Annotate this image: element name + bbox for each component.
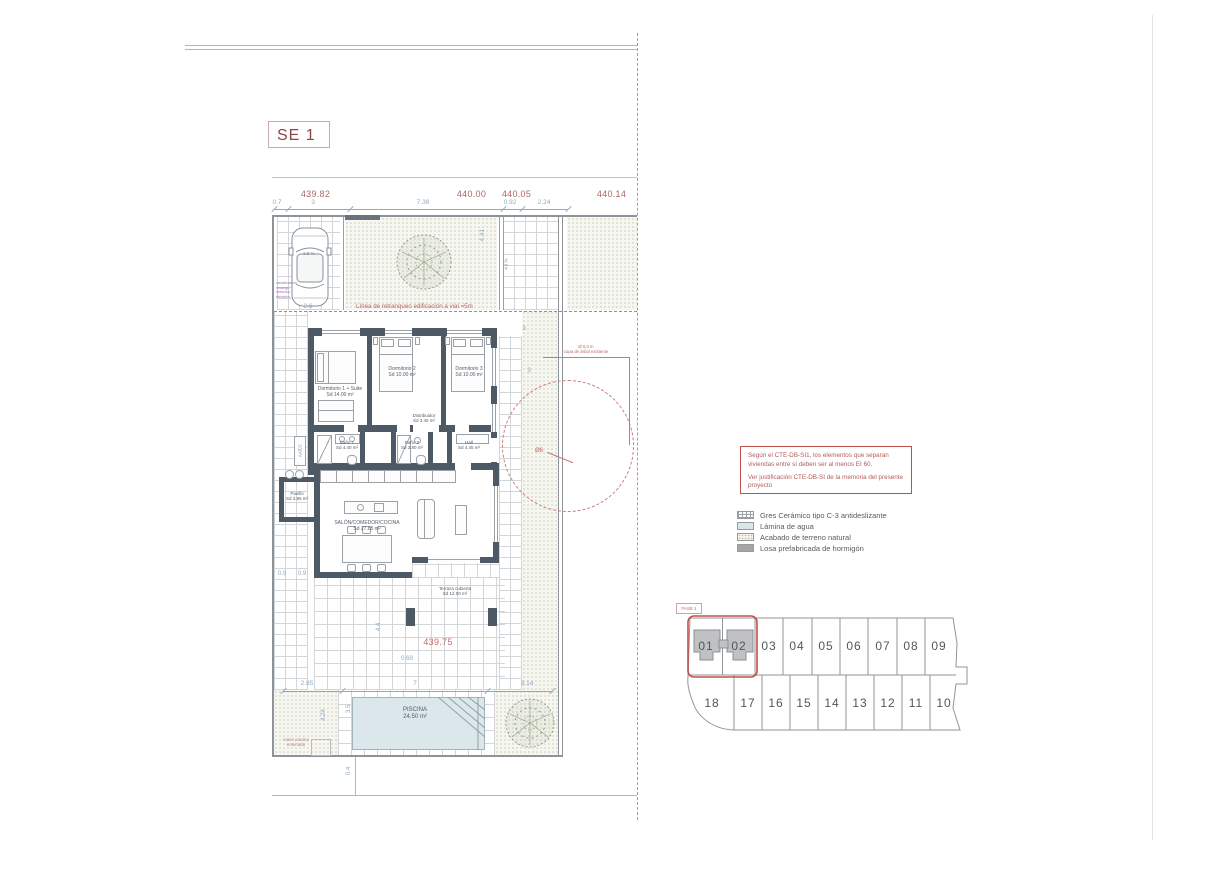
level-label: 439.75 xyxy=(418,638,458,647)
front-garden-right xyxy=(567,217,637,310)
frame-top-line-1 xyxy=(185,45,637,46)
plot-cell-11: 11 xyxy=(904,696,928,710)
dimension-label: 7.38 xyxy=(410,200,436,207)
ev-charging-note: canalización recargavehículo eléctrico xyxy=(276,281,302,300)
plot-cell-07: 07 xyxy=(871,639,895,653)
plot-cell-18: 18 xyxy=(700,696,724,710)
dimension-label: 3 xyxy=(515,326,533,333)
pool-motor-note: motor piscina enterrado xyxy=(282,737,310,748)
frame-top-line-2 xyxy=(185,49,637,50)
dimension-label: 4.41 xyxy=(480,222,487,248)
plot-cell-10: 10 xyxy=(932,696,956,710)
dimension-label: 7 xyxy=(404,681,426,688)
garden-slope-label: 4.9 % xyxy=(503,252,508,270)
setback-line-front xyxy=(274,311,637,312)
room-label-bano-1: Baño 1Sd 4.40 m² xyxy=(327,440,367,451)
plot-cell-03: 03 xyxy=(757,639,781,653)
room-label-salon: SALÓN/COMEDOR/COCINASd 27.85 m² xyxy=(327,520,407,532)
sofa xyxy=(417,499,435,539)
dimension-label: 2.6 xyxy=(298,304,318,311)
sheet-title: SE 1 xyxy=(268,121,330,148)
room-label-dormitorio-1: Dormitorio 1 + SuiteSd 14.00 m² xyxy=(310,386,370,398)
legend-swatch-ceramic xyxy=(737,511,754,519)
dimension-label: 0.9 xyxy=(294,571,310,577)
pool-steps xyxy=(438,697,485,750)
plot-cell-08: 08 xyxy=(899,639,923,653)
setback-front-label: Línea de retranqueo edificación a vial =… xyxy=(356,303,506,311)
parking-divider xyxy=(343,217,344,310)
level-label: 440.14 xyxy=(589,190,634,199)
dimension-label: 2.24 xyxy=(531,200,557,207)
frame-mid-line xyxy=(272,177,637,178)
plot-cell-12: 12 xyxy=(876,696,900,710)
plot-cell-04: 04 xyxy=(785,639,809,653)
legend-label: Lámina de agua xyxy=(760,522,814,531)
dimension-label: 0.69 xyxy=(396,656,418,662)
pool-motor-box xyxy=(311,739,331,756)
plot-cell-09: 09 xyxy=(927,639,951,653)
terrace-pillar xyxy=(406,608,415,626)
dimension-label: 0.92 xyxy=(497,200,523,207)
terrace-pillar xyxy=(488,608,497,626)
legend-swatch-terrain xyxy=(737,533,754,541)
legend-label: Acabado de terreno natural xyxy=(760,533,851,542)
aacc-label: AA/CC xyxy=(297,439,302,463)
plot-cell-01: 01 xyxy=(694,639,718,653)
fire-code-note: Según el CTE-DB-SI1, los elementos que s… xyxy=(740,446,912,494)
level-label: 439.82 xyxy=(293,190,338,199)
garden-wall-a xyxy=(499,217,500,310)
parking-slope-label: 2.5 % xyxy=(303,251,315,257)
street-line xyxy=(272,795,637,796)
side-path-right xyxy=(499,336,522,690)
plot-cell-17: 17 xyxy=(736,696,760,710)
tree-bracket-v xyxy=(629,357,630,445)
tree-icon xyxy=(503,696,557,750)
dimension-label: 2.85 xyxy=(294,681,320,688)
gate-segment xyxy=(345,215,380,220)
plot-cell-05: 05 xyxy=(814,639,838,653)
tree-icon xyxy=(394,232,454,292)
room-label-pasillo: PasilloSd 3.85 m² xyxy=(277,491,317,502)
room-label-hall: HallSd 4.45 m² xyxy=(449,440,489,451)
plot-cell-16: 16 xyxy=(764,696,788,710)
plot-cell-02: 02 xyxy=(727,639,751,653)
existing-tree-canopy xyxy=(502,380,634,512)
room-label-distribuidor: DistribuidorSd 3.40 m² xyxy=(404,413,444,424)
room-label-bano-2: Baño 2Sd 3.80 m² xyxy=(392,440,432,451)
dimension-label: 0.9 xyxy=(274,571,290,577)
legend-swatch-water xyxy=(737,522,754,530)
legend-swatch-concrete xyxy=(737,544,754,552)
pool-label: PISCINA24.50 m² xyxy=(385,707,445,721)
dimension-label: 3.14 xyxy=(514,681,540,688)
tree-bracket-h xyxy=(543,357,629,358)
plot-cell-14: 14 xyxy=(820,696,844,710)
room-label-dormitorio-3: Dormitorio 3Sd 10.00 m² xyxy=(439,366,499,378)
sheet-right-edge xyxy=(1152,15,1153,840)
tree-diameter-label: Ø6 xyxy=(531,448,547,456)
plot-cell-06: 06 xyxy=(842,639,866,653)
dimension-line xyxy=(274,209,568,210)
legend-label: Gres Cerámico tipo C-3 antideslizante xyxy=(760,511,887,520)
frame-fold-dashed-line xyxy=(637,33,638,820)
street-offset-line xyxy=(355,757,356,795)
plot-cell-13: 13 xyxy=(848,696,872,710)
boundary-left xyxy=(272,215,274,757)
entry-door xyxy=(491,438,497,462)
terrace-paving xyxy=(412,563,499,578)
dimension-label: 4.24 xyxy=(321,704,327,726)
level-label: 440.05 xyxy=(494,190,539,199)
pool-dimension-line xyxy=(283,691,552,692)
drawing-sheet: SE 1 439.82 440.00 440.05 440.14 0.7 3 7… xyxy=(0,0,1220,870)
dimension-label: 0.4 xyxy=(346,762,352,780)
level-label: 440.00 xyxy=(449,190,494,199)
side-path-top xyxy=(503,217,558,310)
tree-note: Ø 6,0 mcopa de árbol existente xyxy=(543,344,629,355)
plot-map xyxy=(672,598,972,738)
dimension-label: 3 xyxy=(520,368,538,375)
dimension-label: 3 xyxy=(300,200,326,207)
room-label-terraza: Terraza cubiertaSd 12.00 m² xyxy=(425,586,485,597)
dimension-label: 4.4 xyxy=(376,618,382,636)
boundary-top xyxy=(272,215,637,217)
dining-table xyxy=(342,535,392,563)
room-label-dormitorio-2: Dormitorio 2Sd 10.00 m² xyxy=(372,366,432,378)
plot-cell-15: 15 xyxy=(792,696,816,710)
legend-label: Losa prefabricada de hormigón xyxy=(760,544,864,553)
